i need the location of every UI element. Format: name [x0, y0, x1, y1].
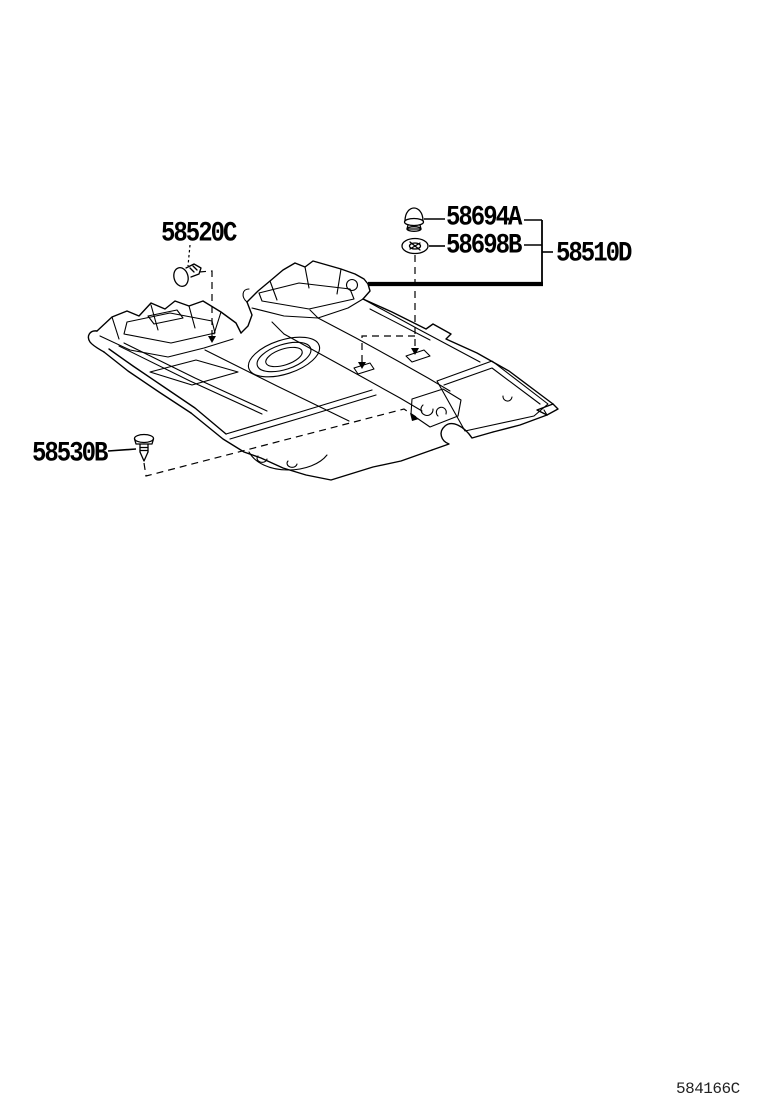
part-label-58530b: 58530B — [32, 440, 106, 470]
part-label-58510d: 58510D — [556, 240, 630, 270]
part-label-58520c: 58520C — [161, 220, 235, 250]
parts-diagram-canvas — [0, 0, 760, 1112]
figure-code: 584166C — [676, 1080, 740, 1098]
canvas-background — [0, 0, 760, 1112]
parts-diagram-page: 58520C 58694A 58698B 58510D 58530B 58416… — [0, 0, 760, 1112]
part-label-58698b: 58698B — [446, 232, 520, 262]
part-label-58694a: 58694A — [446, 204, 520, 234]
